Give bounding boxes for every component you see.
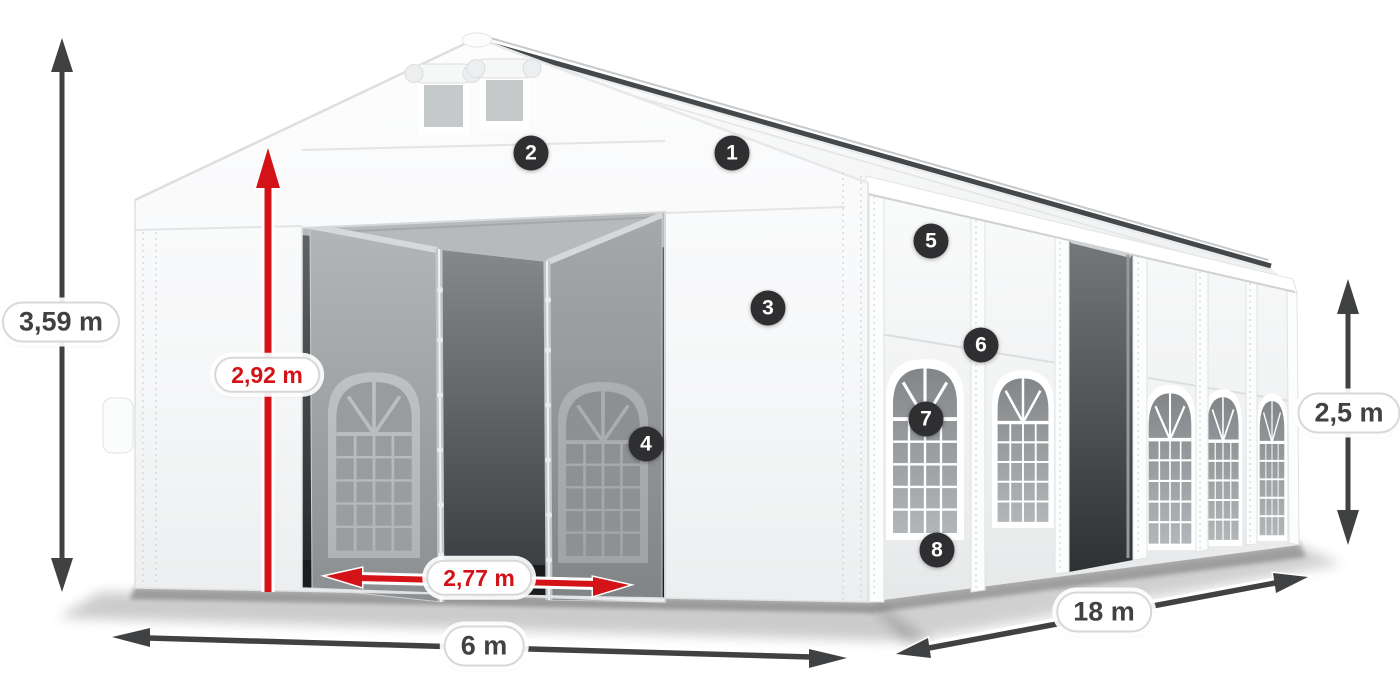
callout-badge-6[interactable]: 6 xyxy=(964,328,999,363)
dimension-label-entrance-height: 2,92 m xyxy=(214,357,320,393)
dimension-label-total-height: 3,59 m xyxy=(2,301,120,342)
callout-badge-4[interactable]: 4 xyxy=(629,427,664,462)
callout-badge-3[interactable]: 3 xyxy=(751,291,786,326)
callout-badge-5[interactable]: 5 xyxy=(914,224,949,259)
dimension-label-front-width: 6 m xyxy=(444,625,525,666)
dimension-label-side-length: 18 m xyxy=(1056,591,1152,632)
callout-badge-1[interactable]: 1 xyxy=(715,136,750,171)
callout-badge-7[interactable]: 7 xyxy=(909,402,944,437)
dimension-label-side-height: 2,5 m xyxy=(1297,392,1400,433)
side-strap-tab xyxy=(103,398,133,453)
front-left-door-open xyxy=(310,226,444,602)
front-right-door-open xyxy=(545,214,662,602)
callout-badge-2[interactable]: 2 xyxy=(514,136,549,171)
tent-illustration xyxy=(0,0,1400,700)
product-dimension-diagram: 3,59 m 2,92 m 2,77 m 6 m 18 m 2,5 m 1 2 … xyxy=(0,0,1400,700)
side-entrance-opening xyxy=(1069,235,1133,572)
callout-badge-8[interactable]: 8 xyxy=(920,533,955,568)
tent-interior xyxy=(302,212,665,602)
dimension-label-entrance-width: 2,77 m xyxy=(426,560,532,596)
